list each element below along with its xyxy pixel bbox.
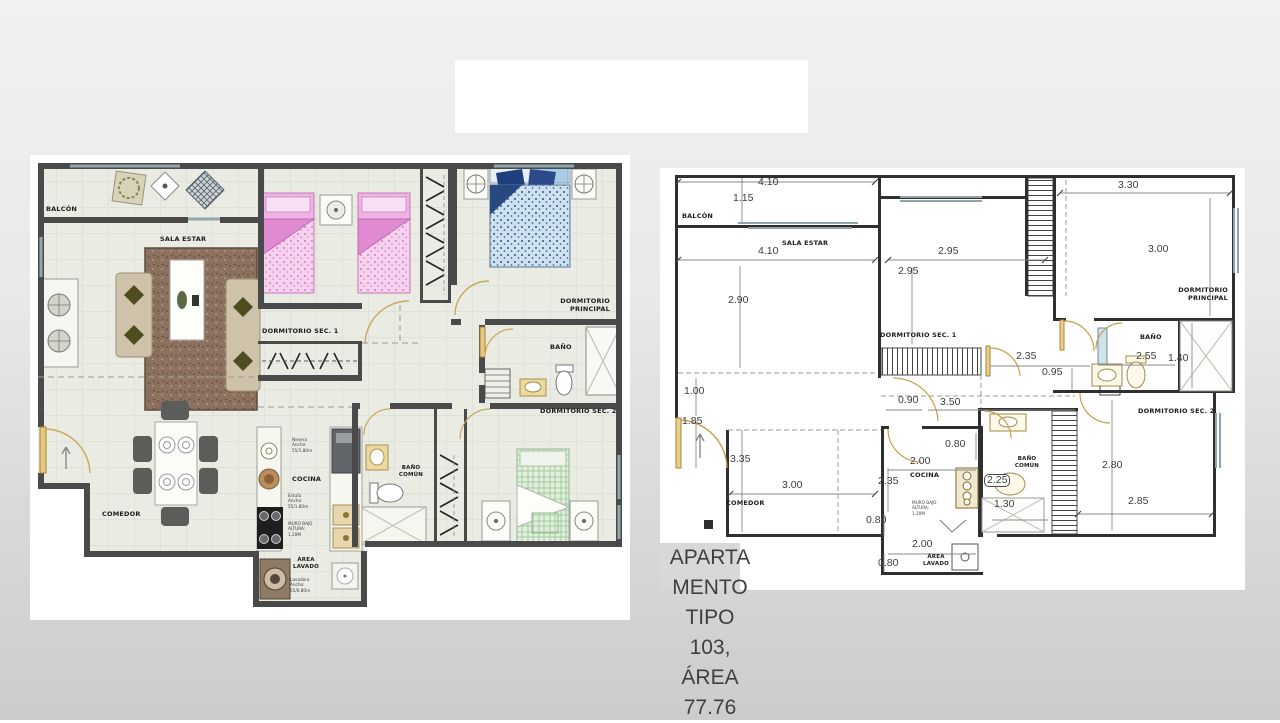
dim-comedor-width: 3.00: [782, 480, 802, 491]
dim-acceso-b: 1.85: [682, 416, 702, 427]
room-label-dormitorio-sec-1: DORMITORIO SEC. 1: [262, 327, 339, 335]
dim-acceso-a: 1.00: [684, 386, 704, 397]
dim-pasillo-b: 0.95: [1042, 367, 1062, 378]
dim-pasillo-a: 2.35: [1016, 351, 1036, 362]
dim-lavado-depth: 0.80: [878, 558, 898, 569]
windows: [738, 197, 1238, 468]
floor-plan-dimensioned-drawing: [660, 168, 1245, 590]
dim-sec1-width: 2.95: [938, 246, 958, 257]
dim-cocina-c: 0.80: [945, 439, 965, 450]
room-label-area-lavado: ÁREA LAVADO: [918, 554, 954, 568]
table-decor: [177, 291, 187, 309]
room-label-dormitorio-sec-2: DORMITORIO SEC. 2: [540, 407, 617, 415]
dim-bano-width: 2.55: [1136, 351, 1156, 362]
dim-comedor-depth: 3.35: [730, 454, 750, 465]
note-estufa: Estufa Ancho: 55/1.80m: [288, 493, 308, 509]
dim-sala-depth: 2.90: [728, 295, 748, 306]
dim-sec2-depth: 2.80: [1102, 460, 1122, 471]
bath-window: [1098, 328, 1107, 366]
note-nevera: Nevera Ancho: 55/1.80m: [292, 437, 312, 453]
room-label-dormitorio-principal: DORMITORIO PRINCIPAL: [548, 297, 610, 313]
room-label-area-lavado: ÁREA LAVADO: [286, 557, 326, 571]
dim-cocina-depth: 2.35: [878, 476, 898, 487]
dim-bano-depth: 1.40: [1168, 353, 1188, 364]
dim-bano-comun-depth: 1.30: [994, 499, 1014, 510]
note-lavadora: Lavadora Ancho: 55/0.80m: [290, 577, 310, 593]
caption[interactable]: APARTA MENTO TIPO 103, ÁREA 77.76: [662, 543, 758, 723]
floor-plan-rendered-drawing: [30, 155, 630, 620]
room-label-bano: BAÑO: [1140, 333, 1162, 341]
dim-balcon-width: 4.10: [758, 177, 778, 188]
room-label-bano: BAÑO: [550, 343, 572, 351]
room-label-sala-estar: SALA ESTAR: [782, 239, 828, 247]
dim-principal-depth: 3.00: [1148, 244, 1168, 255]
note-muro-bajo: MURO BAJO ALTURA: 1.20M: [288, 521, 312, 537]
room-label-balcon: BALCÓN: [682, 212, 713, 220]
room-label-comedor: COMEDOR: [102, 510, 141, 518]
room-label-comedor: COMEDOR: [726, 499, 765, 507]
slide: BALCÓN SALA ESTAR DORMITORIO SEC. 1 DORM…: [0, 0, 1280, 720]
dim-sec2-width: 2.85: [1128, 496, 1148, 507]
room-label-bano-comun: BAÑO COMÚN: [1012, 456, 1042, 470]
dim-muro-depth: 0.80: [866, 515, 886, 526]
room-label-cocina: COCINA: [292, 475, 321, 483]
dim-sec1-depth: 2.95: [898, 266, 918, 277]
dim-bano-comun-width: 2.25: [984, 474, 1010, 487]
title-placeholder[interactable]: [455, 60, 808, 133]
note-muro-bajo: MURO BAJO ALTURA: 1.20M: [912, 500, 936, 516]
dim-balcon-depth: 1.15: [733, 193, 753, 204]
room-label-bano-comun: BAÑO COMÚN: [394, 465, 428, 479]
room-label-dormitorio-principal: DORMITORIO PRINCIPAL: [1156, 286, 1228, 302]
dim-principal-width: 3.30: [1118, 180, 1138, 191]
floor-plan-dimensioned[interactable]: BALCÓN SALA ESTAR DORMITORIO SEC. 1 DORM…: [660, 168, 1245, 590]
floor-plan-rendered[interactable]: BALCÓN SALA ESTAR DORMITORIO SEC. 1 DORM…: [30, 155, 630, 620]
closet-sec2: [1052, 411, 1077, 534]
sala-console: [40, 279, 78, 367]
room-label-dormitorio-sec-2: DORMITORIO SEC. 2: [1138, 407, 1215, 415]
table-remote: [192, 295, 199, 306]
dim-cocina-width: 2.00: [910, 456, 930, 467]
room-label-dormitorio-sec-1: DORMITORIO SEC. 1: [880, 331, 957, 339]
room-label-sala-estar: SALA ESTAR: [160, 235, 206, 243]
room-label-cocina: COCINA: [910, 471, 939, 479]
closet-sec1: [881, 348, 981, 375]
room-label-balcon: BALCÓN: [46, 205, 77, 213]
dim-cocina-a: 0.90: [898, 395, 918, 406]
closet-principal: [1028, 178, 1053, 296]
dim-cocina-b: 3.50: [940, 397, 960, 408]
dim-sala-width: 4.10: [758, 246, 778, 257]
dim-lavado-width: 2.00: [912, 539, 932, 550]
